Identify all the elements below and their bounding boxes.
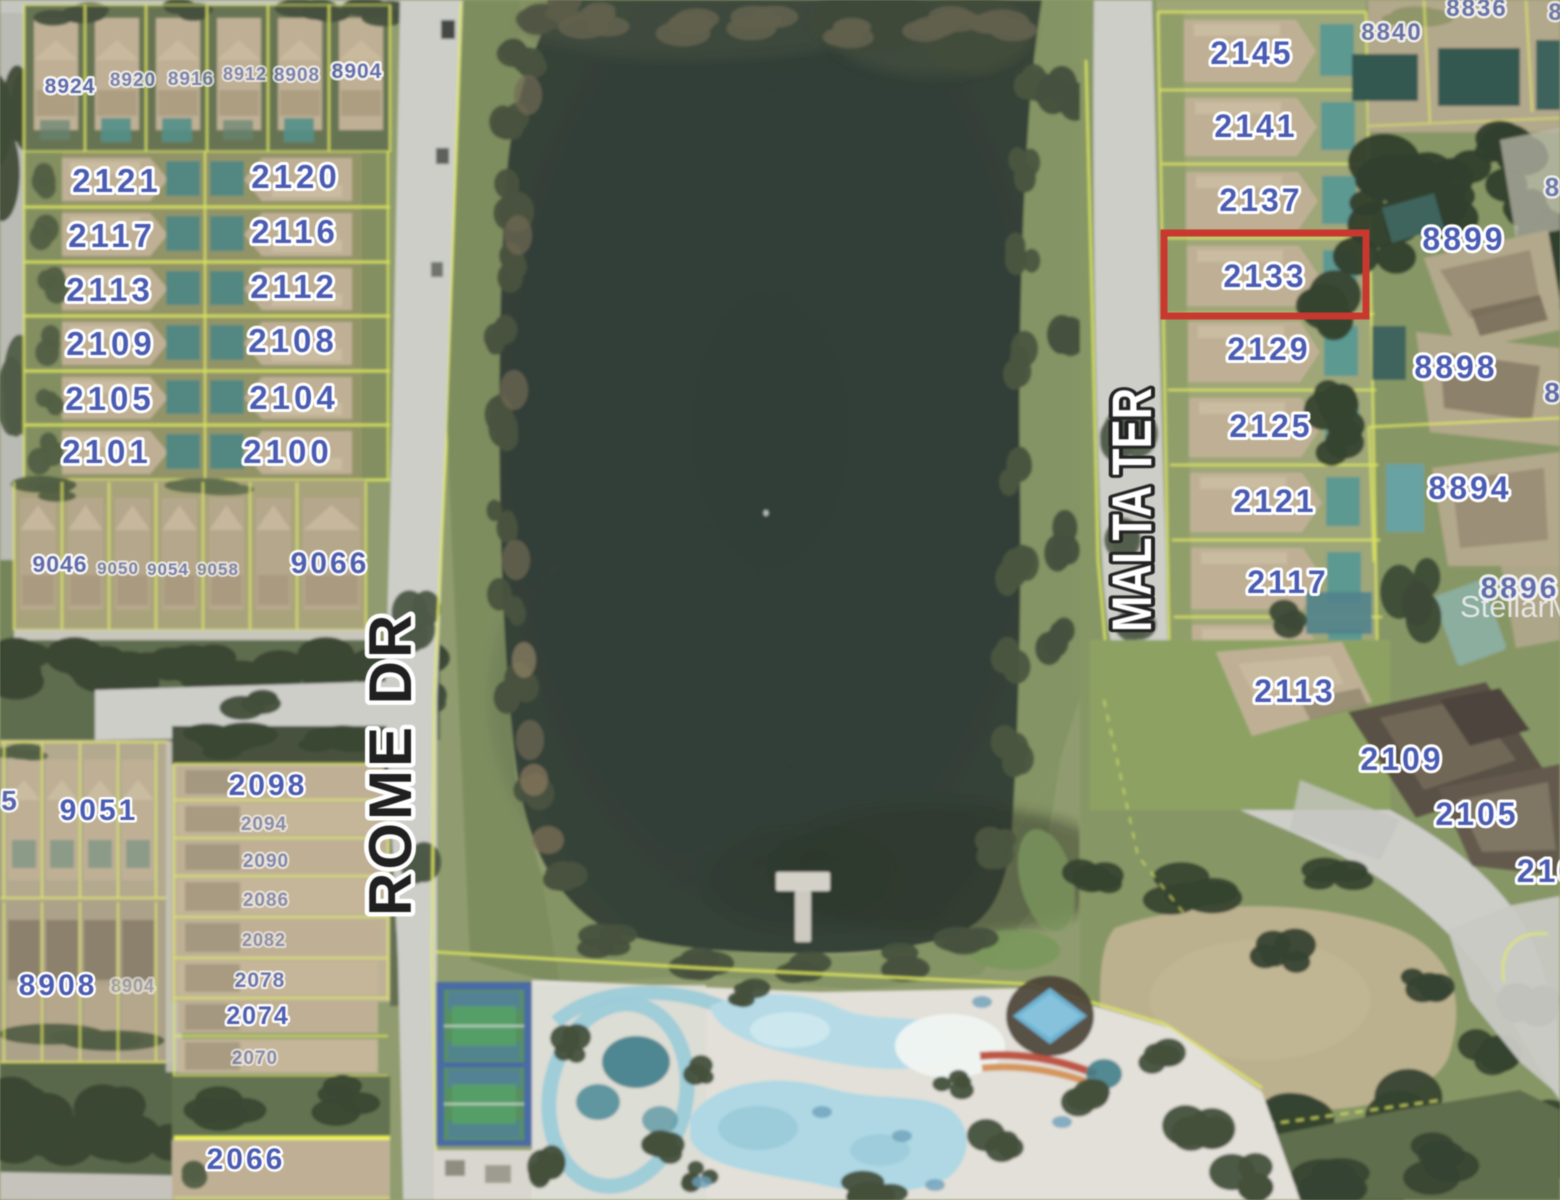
svg-text:8908: 8908 <box>19 969 98 1002</box>
svg-text:2129: 2129 <box>1227 331 1310 367</box>
svg-text:2104: 2104 <box>249 379 338 416</box>
svg-text:2117: 2117 <box>68 217 156 254</box>
svg-text:2086: 2086 <box>243 890 289 911</box>
svg-text:2120: 2120 <box>251 158 340 195</box>
svg-text:8924: 8924 <box>45 75 96 98</box>
svg-text:8836: 8836 <box>1446 0 1507 22</box>
svg-text:2105: 2105 <box>65 380 154 417</box>
svg-text:2121: 2121 <box>72 162 161 199</box>
svg-text:9054: 9054 <box>147 560 189 579</box>
svg-text:2078: 2078 <box>235 969 286 992</box>
svg-text:9046: 9046 <box>32 551 87 577</box>
svg-text:9066: 9066 <box>291 547 370 580</box>
svg-text:2145: 2145 <box>1210 35 1293 71</box>
svg-text:2117: 2117 <box>1247 564 1328 600</box>
svg-text:StellarMLS: StellarMLS <box>1460 589 1560 624</box>
svg-text:8899: 8899 <box>1422 221 1505 257</box>
svg-text:5: 5 <box>1 785 19 816</box>
svg-text:8894: 8894 <box>1428 470 1511 506</box>
svg-text:8: 8 <box>1544 377 1560 408</box>
svg-text:2113: 2113 <box>66 271 154 308</box>
svg-text:8904: 8904 <box>111 976 155 996</box>
svg-text:2121: 2121 <box>1233 483 1316 519</box>
svg-text:2109: 2109 <box>1360 741 1443 777</box>
svg-text:8908: 8908 <box>274 65 320 86</box>
svg-text:2133: 2133 <box>1223 258 1306 294</box>
svg-text:2137: 2137 <box>1219 182 1302 218</box>
svg-text:2105: 2105 <box>1435 796 1518 832</box>
svg-text:2098: 2098 <box>229 769 308 802</box>
svg-text:ROME DR: ROME DR <box>357 612 424 916</box>
svg-text:8: 8 <box>1548 0 1560 26</box>
svg-text:9058: 9058 <box>197 560 239 579</box>
svg-text:210: 210 <box>1517 853 1560 889</box>
svg-text:2094: 2094 <box>241 814 287 835</box>
svg-text:2108: 2108 <box>248 322 337 359</box>
svg-text:8916: 8916 <box>168 69 214 90</box>
svg-text:9051: 9051 <box>60 794 139 827</box>
svg-text:2113: 2113 <box>1254 673 1335 709</box>
svg-text:8898: 8898 <box>1414 349 1497 385</box>
svg-text:2066: 2066 <box>207 1143 286 1176</box>
svg-text:2082: 2082 <box>242 930 286 950</box>
svg-text:MALTA TER: MALTA TER <box>1101 388 1163 632</box>
svg-text:2100: 2100 <box>243 433 332 470</box>
svg-text:2070: 2070 <box>232 1048 278 1069</box>
svg-text:2101: 2101 <box>62 433 151 470</box>
svg-text:2112: 2112 <box>250 268 338 305</box>
svg-text:2074: 2074 <box>226 1002 290 1030</box>
svg-text:2109: 2109 <box>66 325 155 362</box>
svg-text:2125: 2125 <box>1229 408 1312 444</box>
svg-text:2116: 2116 <box>251 213 339 250</box>
svg-text:2141: 2141 <box>1214 108 1297 144</box>
svg-text:2090: 2090 <box>243 851 289 872</box>
svg-text:8840: 8840 <box>1361 19 1422 46</box>
svg-text:8904: 8904 <box>332 60 383 83</box>
svg-text:8920: 8920 <box>110 70 156 91</box>
svg-text:8912: 8912 <box>223 64 267 84</box>
svg-text:8: 8 <box>1545 172 1560 202</box>
svg-text:9050: 9050 <box>97 559 139 578</box>
